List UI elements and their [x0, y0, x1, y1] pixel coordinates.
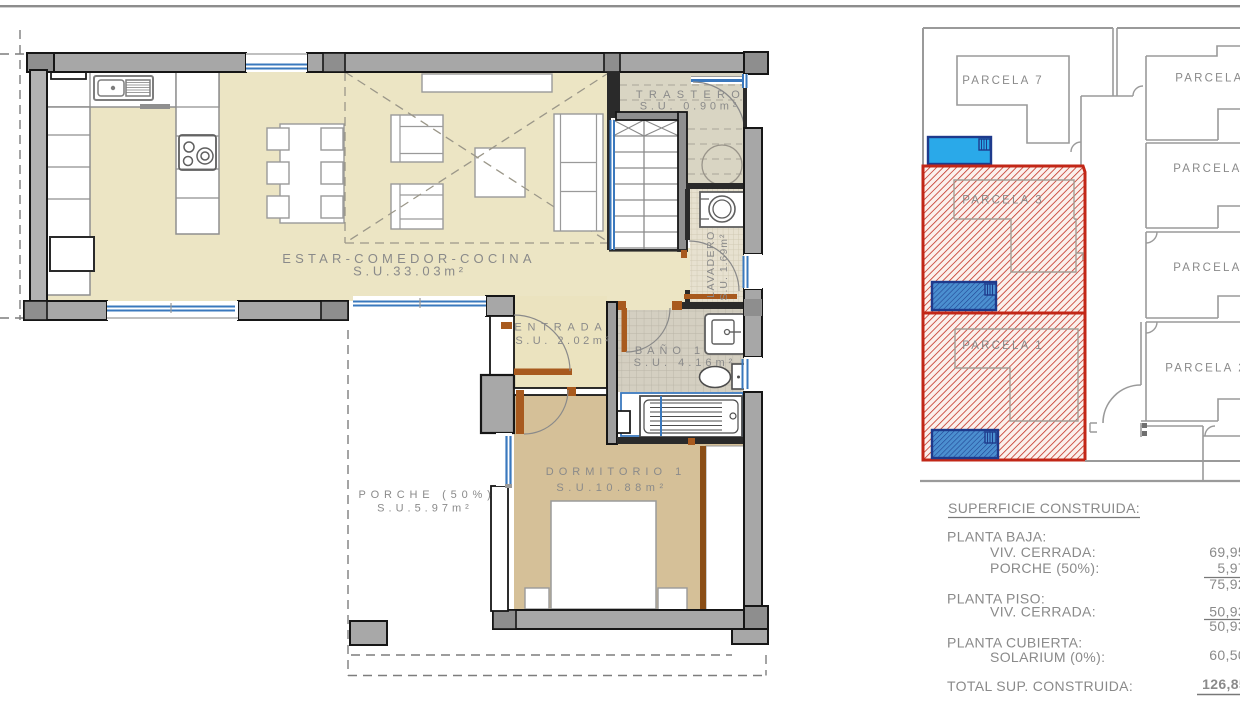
svg-text:S.U.5.97m²: S.U.5.97m²: [377, 503, 473, 515]
svg-text:PARCELA 7: PARCELA 7: [962, 75, 1044, 87]
svg-text:S.U. 0.90m²: S.U. 0.90m²: [640, 101, 741, 113]
svg-text:PLANTA BAJA:: PLANTA BAJA:: [947, 529, 1047, 545]
svg-text:PARCELA 1: PARCELA 1: [962, 340, 1044, 352]
svg-text:69,95: 69,95: [1209, 544, 1240, 560]
svg-text:S.U.33.03m²: S.U.33.03m²: [353, 264, 467, 279]
svg-text:ENTRADA: ENTRADA: [514, 322, 607, 334]
svg-text:S.U. 2.02m²: S.U. 2.02m²: [515, 335, 612, 347]
svg-text:5,97: 5,97: [1217, 560, 1240, 576]
svg-text:PORCHE (50%):: PORCHE (50%):: [990, 560, 1100, 576]
svg-text:BAÑO 1: BAÑO 1: [635, 344, 705, 357]
svg-text:S.U. 1.69m²: S.U. 1.69m²: [718, 233, 730, 300]
svg-text:SUPERFICIE CONSTRUIDA:: SUPERFICIE CONSTRUIDA:: [948, 500, 1140, 516]
svg-text:60,50: 60,50: [1209, 647, 1240, 663]
svg-text:DORMITORIO 1: DORMITORIO 1: [546, 466, 686, 478]
svg-text:TOTAL SUP. CONSTRUIDA:: TOTAL SUP. CONSTRUIDA:: [947, 678, 1133, 694]
svg-text:75,92: 75,92: [1209, 576, 1240, 592]
svg-text:S.U. 4.16m²: S.U. 4.16m²: [634, 357, 737, 369]
svg-text:PARCELA 2: PARCELA 2: [1165, 363, 1240, 375]
svg-text:126,85: 126,85: [1202, 676, 1240, 692]
svg-text:PARCELA 5: PARCELA 5: [1173, 163, 1240, 175]
svg-text:PARCELA 4: PARCELA 4: [1173, 262, 1240, 274]
svg-text:PARCELA 5: PARCELA 5: [1175, 73, 1240, 85]
svg-text:SOLARIUM (0%):: SOLARIUM (0%):: [990, 649, 1105, 665]
svg-text:VIV. CERRADA:: VIV. CERRADA:: [990, 604, 1096, 620]
svg-text:TRASTERO: TRASTERO: [636, 89, 746, 101]
svg-text:PARCELA 3: PARCELA 3: [962, 195, 1044, 207]
svg-text:S.U.10.88m²: S.U.10.88m²: [556, 482, 667, 494]
svg-text:PORCHE (50%): PORCHE (50%): [358, 489, 495, 501]
svg-text:LAVADERO: LAVADERO: [705, 230, 717, 298]
svg-text:50,93: 50,93: [1209, 618, 1240, 634]
svg-text:VIV. CERRADA:: VIV. CERRADA:: [990, 544, 1096, 560]
